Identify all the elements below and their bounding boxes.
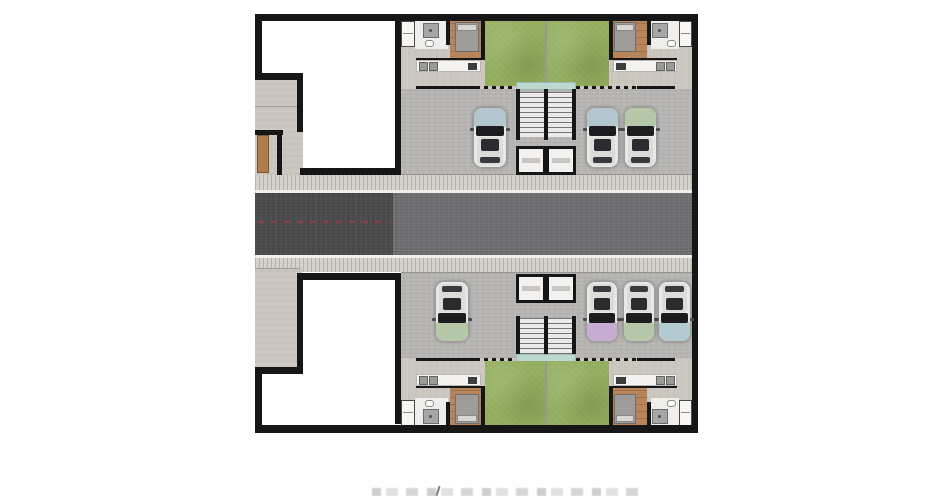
toilet xyxy=(667,400,676,407)
toilet xyxy=(425,40,434,47)
perimeter-wall-right xyxy=(692,14,698,432)
cropped-caption-text xyxy=(372,488,640,496)
site-plan xyxy=(0,0,948,496)
pillow xyxy=(457,24,477,31)
stair-flight xyxy=(548,318,572,354)
stove xyxy=(666,376,675,385)
sidewalk-north xyxy=(255,175,692,190)
lawn xyxy=(547,361,609,426)
garage-curb-edge xyxy=(401,272,692,273)
cooktop xyxy=(616,377,626,384)
stove xyxy=(666,62,675,71)
toilet xyxy=(425,400,434,407)
wall xyxy=(297,80,303,132)
lawn xyxy=(547,21,609,86)
gate-door xyxy=(257,135,269,173)
window-band xyxy=(476,86,516,89)
wall xyxy=(297,273,303,368)
road-asphalt-west xyxy=(255,193,393,255)
shower xyxy=(423,409,439,424)
elevator xyxy=(546,274,576,303)
road-centerline xyxy=(258,221,390,223)
sidewalk-south xyxy=(255,258,692,272)
garage-wall xyxy=(637,358,675,361)
southwest-void-room xyxy=(302,280,395,424)
wall xyxy=(255,368,262,430)
stair-wall xyxy=(516,316,520,358)
stair-flight xyxy=(520,318,544,354)
cooktop xyxy=(468,377,477,384)
toilet xyxy=(667,40,676,47)
garage-wall xyxy=(416,358,476,361)
sink xyxy=(656,62,665,71)
closet xyxy=(401,400,415,426)
pillow xyxy=(616,24,634,31)
stair-wall xyxy=(572,316,576,358)
sink xyxy=(429,62,438,71)
elevator xyxy=(516,146,546,175)
wall xyxy=(300,168,395,175)
shower xyxy=(652,409,668,424)
stair-flight xyxy=(548,92,572,137)
sink xyxy=(429,376,438,385)
stair-wall xyxy=(544,89,548,140)
wall xyxy=(255,73,303,80)
wall xyxy=(255,367,303,374)
perimeter-wall-top xyxy=(255,14,698,21)
lawn xyxy=(485,21,545,86)
closet xyxy=(679,400,692,426)
gate-jamb xyxy=(277,130,282,175)
shower xyxy=(652,23,668,38)
shower xyxy=(423,23,439,38)
window-band xyxy=(576,86,637,89)
wall xyxy=(300,273,395,280)
stair-flight xyxy=(520,92,544,137)
stove xyxy=(419,376,428,385)
road-asphalt-east xyxy=(393,193,692,255)
elevator xyxy=(546,146,576,175)
stair-wall xyxy=(516,89,520,140)
path-step-line xyxy=(255,106,300,107)
path-edge-line xyxy=(255,268,300,269)
closet xyxy=(401,21,415,47)
stair-wall xyxy=(544,316,548,358)
pillow xyxy=(457,415,477,422)
garage-wall xyxy=(416,86,476,89)
elevator xyxy=(516,274,546,303)
perimeter-wall-bottom xyxy=(255,425,698,433)
sink xyxy=(656,376,665,385)
stove xyxy=(419,62,428,71)
cooktop xyxy=(468,63,477,70)
wall xyxy=(255,14,262,76)
stair-wall xyxy=(572,89,576,140)
closet xyxy=(679,21,692,47)
southwest-entry-path xyxy=(255,268,302,368)
garage-wall xyxy=(637,86,675,89)
southwest-void-room-lower xyxy=(262,374,302,424)
pillow xyxy=(616,415,634,422)
lawn xyxy=(485,361,545,426)
cooktop xyxy=(616,63,626,70)
